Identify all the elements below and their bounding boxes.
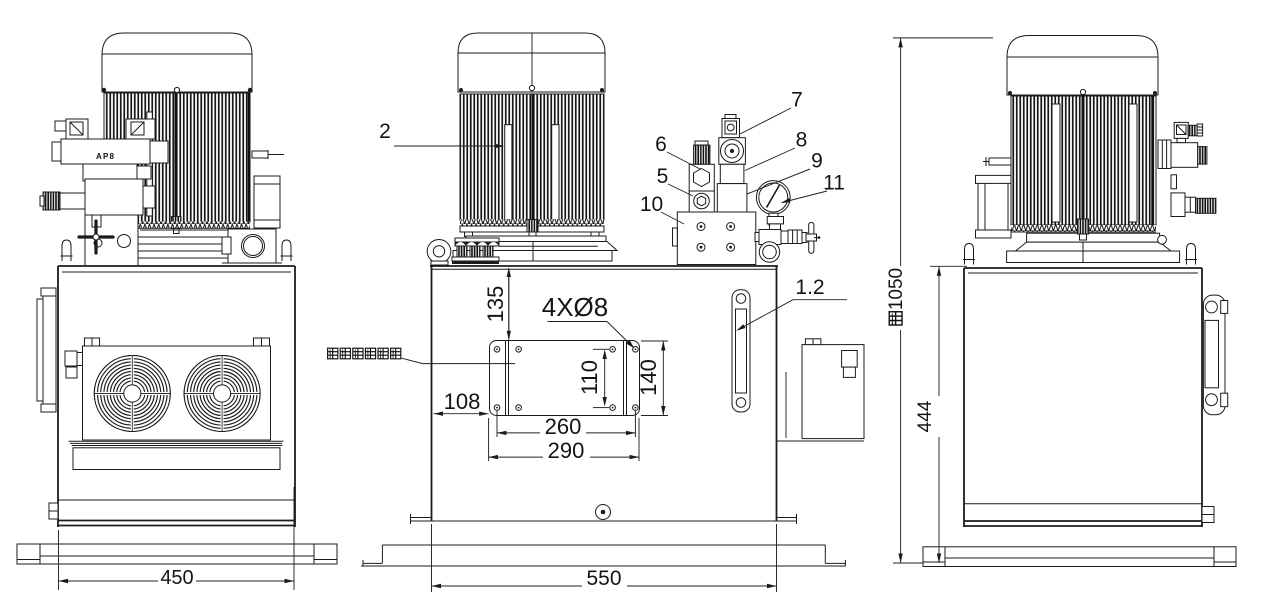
svg-text:10: 10 — [640, 193, 663, 216]
svg-text:9: 9 — [811, 150, 823, 173]
svg-text:450: 450 — [160, 567, 193, 589]
svg-text:290: 290 — [548, 438, 585, 463]
svg-text:1.2: 1.2 — [795, 276, 824, 299]
svg-text:1050: 1050 — [886, 268, 907, 310]
svg-text:550: 550 — [586, 567, 621, 590]
svg-text:4XØ8: 4XØ8 — [542, 292, 609, 322]
svg-text:5: 5 — [657, 165, 669, 188]
svg-text:260: 260 — [545, 414, 582, 439]
svg-text:AP8: AP8 — [96, 152, 115, 161]
svg-text:2: 2 — [379, 120, 391, 143]
svg-text:7: 7 — [791, 89, 803, 112]
svg-text:8: 8 — [796, 129, 808, 152]
svg-text:108: 108 — [444, 389, 481, 414]
svg-text:135: 135 — [483, 286, 508, 323]
svg-text:110: 110 — [577, 360, 602, 395]
svg-text:6: 6 — [655, 133, 667, 156]
svg-text:444: 444 — [915, 400, 936, 432]
svg-text:140: 140 — [636, 359, 661, 396]
